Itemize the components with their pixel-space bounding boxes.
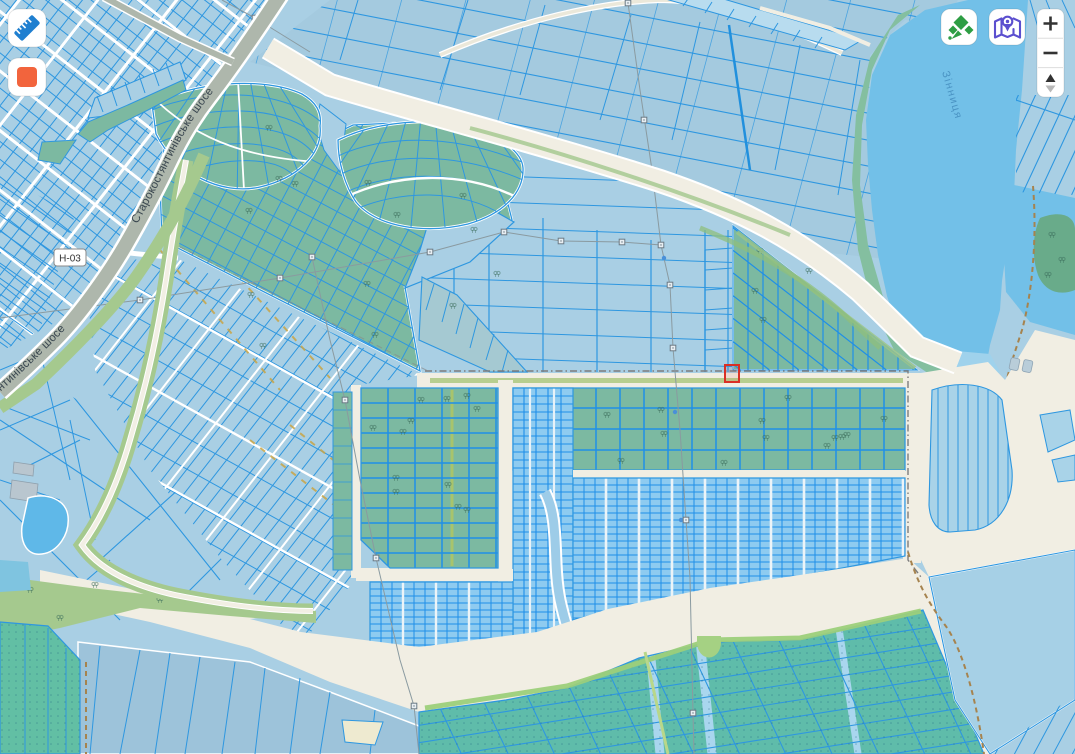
svg-text:Н-03: Н-03 bbox=[59, 254, 81, 265]
